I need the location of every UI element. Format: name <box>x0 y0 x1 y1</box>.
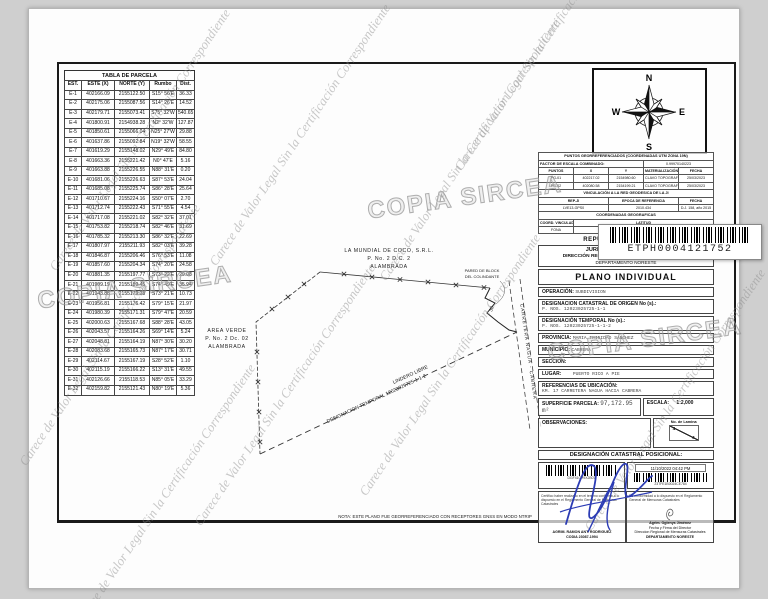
table-row: E-11401685.082155225.74S86° 28'E25.64 <box>65 185 195 195</box>
field-observaciones: OBSERVACIONES: <box>538 418 651 448</box>
table-row: E-28402083.682155165.73N87° 17'E30.71 <box>65 347 195 357</box>
table-row: PG-02402080.582154199.21CLAVO TOPOGRAFIC… <box>539 182 714 189</box>
table-row: E-31402126.662155118.53N85° 05'E33.29 <box>65 376 195 386</box>
table-row: E-20401881.352155197.77S73° 22'E29.08 <box>65 271 195 281</box>
svg-text:AREA VERDE: AREA VERDE <box>207 328 246 334</box>
table-row: E-8401663.362155221.42N0° 47'E5.16 <box>65 157 195 167</box>
table-row: E-13401712.742155222.43S71° 55'E4.54 <box>65 204 195 214</box>
barcode-icon <box>546 465 618 476</box>
field-municipio: MUNICIPIO: CABRERA <box>538 345 714 355</box>
table-row: E-1402166.092155122.50S15° 56'E36.33 <box>65 90 195 100</box>
table-row: E-5401850.612155066.04N25° 27'W29.88 <box>65 128 195 138</box>
svg-text:30: 30 <box>488 305 495 312</box>
table-row: E-17401807.972155211.93S82° 03'E39.28 <box>65 243 195 253</box>
svg-text:PARED DE BLOCK: PARED DE BLOCK <box>465 268 500 273</box>
svg-text:DESIGNACION TEMPORAL 120230257: DESIGNACION TEMPORAL 12023025725-1-1-2 <box>326 373 427 425</box>
georeference-note: NOTA: ESTE PLANO FUE GEORREFERENCIADO CO… <box>285 514 585 519</box>
table-row: E-23401956.812155176.42S79° 15'E21.97 <box>65 300 195 310</box>
parcel-coordinates-table: TABLA DE PARCELA EST. ESTE (X) NORTE (Y)… <box>64 70 194 396</box>
table-row: E-12401710.672155224.16S50° 07'E2.70 <box>65 195 195 205</box>
field-lamina: No. de Lamina 4 4 <box>653 418 714 448</box>
svg-text:ALAMBRADA: ALAMBRADA <box>370 264 407 270</box>
parcel-table-header: EST. ESTE (X) NORTE (Y) Rumbo Dist. <box>65 81 195 91</box>
field-superficie: SUPERFICIE PARCELA: 97,172.95 m² <box>538 398 641 416</box>
svg-text:P. No. 2 D.C. 2: P. No. 2 D.C. 2 <box>367 256 410 262</box>
compass-rose-icon: N S E W <box>594 70 705 152</box>
table-row: E-7401619.292155148.02N29° 49'E84.80 <box>65 147 195 157</box>
table-row: E-16401785.322155213.30S86° 32'E22.69 <box>65 233 195 243</box>
table-row: E-22401943.882155179.28S73° 21'E10.73 <box>65 290 195 300</box>
table-row: E-29402114.672155167.19S28° 52'E1.10 <box>65 357 195 367</box>
lamina-fraction: 4 4 <box>669 425 699 441</box>
fence-x-marks <box>255 272 486 444</box>
field-designacion-origen: DESIGNACION CATASTRAL DE ORIGEN No (s).:… <box>538 299 714 314</box>
table-row: E-3402179.712155073.41S75° 32'W540.65 <box>65 109 195 119</box>
table-row: E-24401980.392155171.31S79° 47'E20.59 <box>65 309 195 319</box>
table-row: E-32402159.822155121.43N80° 19'E5.36 <box>65 386 195 396</box>
director-initials-doodle <box>662 506 678 522</box>
georeference-table: PUNTOS GEORREFERENCIADOS (COORDENADAS UT… <box>538 152 714 234</box>
posicional-barcode-left: DGF41CH9X2B07 <box>538 462 625 488</box>
table-row: E-25402000.632155167.68S88° 28'E43.05 <box>65 319 195 329</box>
document-type-title: PLANO INDIVIDUAL <box>538 269 714 285</box>
barcode-icon <box>610 227 750 243</box>
svg-text:N: N <box>646 73 653 83</box>
table-row: E-21401909.192155189.45S74° 49'E35.94 <box>65 281 195 291</box>
table-row: E-27402048.812155164.19N87° 30'E30.20 <box>65 338 195 348</box>
field-escala: ESCALA: 1:2,000 <box>643 398 714 416</box>
table-row: E-26402043.572155164.26S69° 14'E5.24 <box>65 328 195 338</box>
title-block-panel: PUNTOS GEORREFERENCIADOS (COORDENADAS UT… <box>538 152 714 543</box>
svg-text:E: E <box>679 107 685 117</box>
field-lugar: LUGAR: PUERTO RICO A PIE <box>538 369 714 379</box>
svg-text:W: W <box>612 107 621 117</box>
field-posicional: DESIGNACIÓN CATASTRAL POSICIONAL: <box>538 450 714 460</box>
table-row: E-19401857.602155204.34S74° 20'E24.58 <box>65 262 195 272</box>
table-row: E-6401637.862155092.84N19° 32'W58.55 <box>65 138 195 148</box>
table-row: PG-01402217.022154980.60CLAVO TOPOGRAFIC… <box>539 175 714 182</box>
field-provincia: PROVINCIA: MARIA TRINIDAD SANCHEZ <box>538 333 714 343</box>
table-row: E-14401717.082155221.02S82° 32'E37.01 <box>65 214 195 224</box>
director-certification: De conformidad a lo dispuesto en el Regl… <box>626 491 714 543</box>
table-row: E-9401663.882155226.55N88° 31'E0.20 <box>65 166 195 176</box>
compass-box: N S E W <box>592 68 707 154</box>
parcel-table-title: TABLA DE PARCELA <box>64 70 195 80</box>
barcode-icon <box>634 473 708 482</box>
svg-text:LA MUNDIAL DE COCO, S.R.L.: LA MUNDIAL DE COCO, S.R.L. <box>344 248 433 254</box>
scanned-survey-plan: TABLA DE PARCELA EST. ESTE (X) NORTE (Y)… <box>0 0 768 599</box>
field-designacion-temporal: DESIGNACIÓN TEMPORAL No (s).: P. NOS. 12… <box>538 316 714 331</box>
barcode-sticker: ETPH0004121752 <box>598 224 762 260</box>
table-row: E-15401753.822155218.74S82° 46'E31.69 <box>65 223 195 233</box>
timestamp: 11/10/2022 04:42 PM <box>635 464 706 472</box>
posicional-barcode-right: 11/10/2022 04:42 PM 23TFE1B0024CE784 <box>627 462 714 488</box>
table-row: E-10401681.062155226.63S87° 53'E24.04 <box>65 176 195 186</box>
field-seccion: SECCION: <box>538 357 714 367</box>
field-referencias: REFERENCIAS DE UBICACIÓN: KM. 17 CARRETE… <box>538 381 714 396</box>
svg-text:CARRETERA NAGUA - CABRERA: CARRETERA NAGUA - CABRERA <box>519 304 537 400</box>
table-row: E-2402175.062155087.56S14° 26'E14.52 <box>65 100 195 110</box>
table-row: E-18401846.872155206.46S76° 53'E11.08 <box>65 252 195 262</box>
svg-text:ALAMBRADA: ALAMBRADA <box>208 344 245 350</box>
field-operacion: OPERACIÓN: SUBDIVISION <box>538 287 714 297</box>
svg-text:P. No. 2 Dc. 02: P. No. 2 Dc. 02 <box>205 336 249 342</box>
svg-text:DEL COLINDANTE: DEL COLINDANTE <box>465 274 500 279</box>
sticker-code: ETPH0004121752 <box>627 244 732 255</box>
drawing-labels: LA MUNDIAL DE COCO, S.R.L. P. No. 2 D.C.… <box>205 248 537 425</box>
table-row: E-4401800.912154938.28N2° 32'W127.87 <box>65 119 195 129</box>
svg-text:S: S <box>646 142 652 152</box>
table-row: E-30402115.192155166.22S13° 31'E49.55 <box>65 366 195 376</box>
